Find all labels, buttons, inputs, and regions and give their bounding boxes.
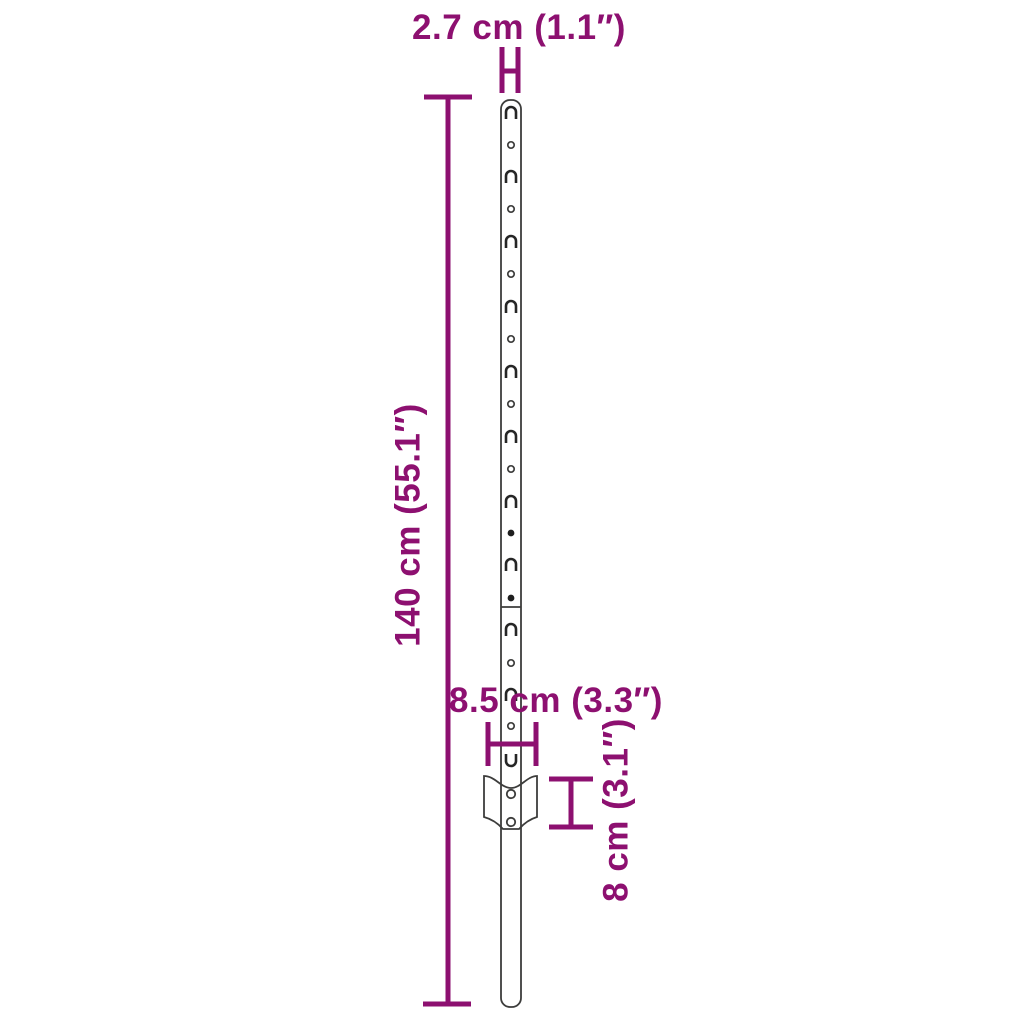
dimension-label-width: 2.7 cm (1.1″): [412, 10, 626, 45]
post-feature-hole: [508, 271, 514, 277]
diagram-canvas: [0, 0, 1024, 1024]
dimension-label-plate-width: 8.5 cm (3.3″): [449, 683, 663, 718]
dimension-label-plate-height: 8 cm (3.1″): [599, 718, 634, 902]
post-feature-hole: [508, 466, 514, 472]
post-feature-dot: [508, 595, 515, 602]
post-feature-hole: [508, 401, 514, 407]
height-dimension-line: [423, 97, 472, 1004]
post-feature-hole: [508, 142, 514, 148]
product-diagram: 2.7 cm (1.1″) 140 cm (55.1″) 8.5 cm (3.3…: [0, 0, 1024, 1024]
width-dimension-line: [502, 47, 518, 93]
plate-height-dimension-line: [549, 779, 593, 827]
post-feature-hole: [508, 660, 514, 666]
post-feature-hole: [508, 206, 514, 212]
post-feature-hole: [508, 336, 514, 342]
post-feature-hole: [508, 723, 514, 729]
fence-post: [484, 100, 537, 1007]
anchor-plate-hole-top: [507, 790, 515, 798]
anchor-plate-hole-bottom: [507, 818, 515, 826]
dimension-label-height: 140 cm (55.1″): [391, 403, 426, 647]
post-feature-dot: [508, 530, 515, 537]
